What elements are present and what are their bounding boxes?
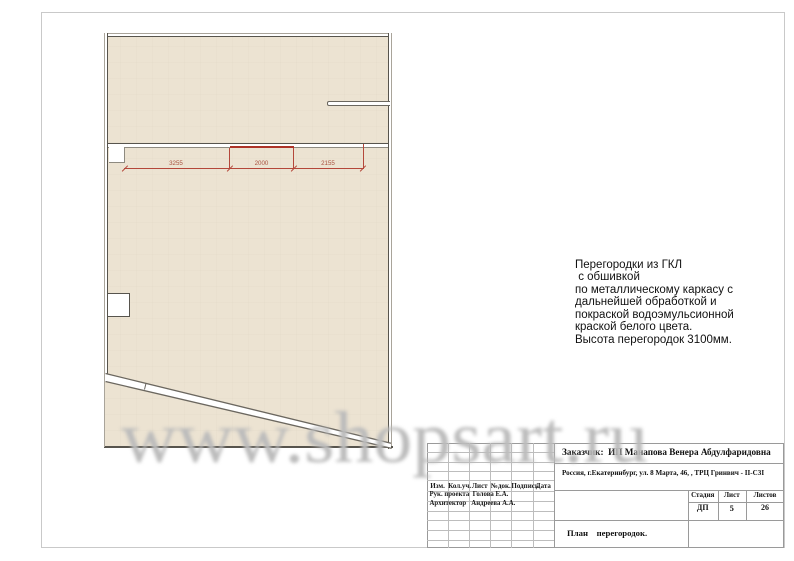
svg-text:www.shopsart.ru: www.shopsart.ru [121, 397, 648, 478]
